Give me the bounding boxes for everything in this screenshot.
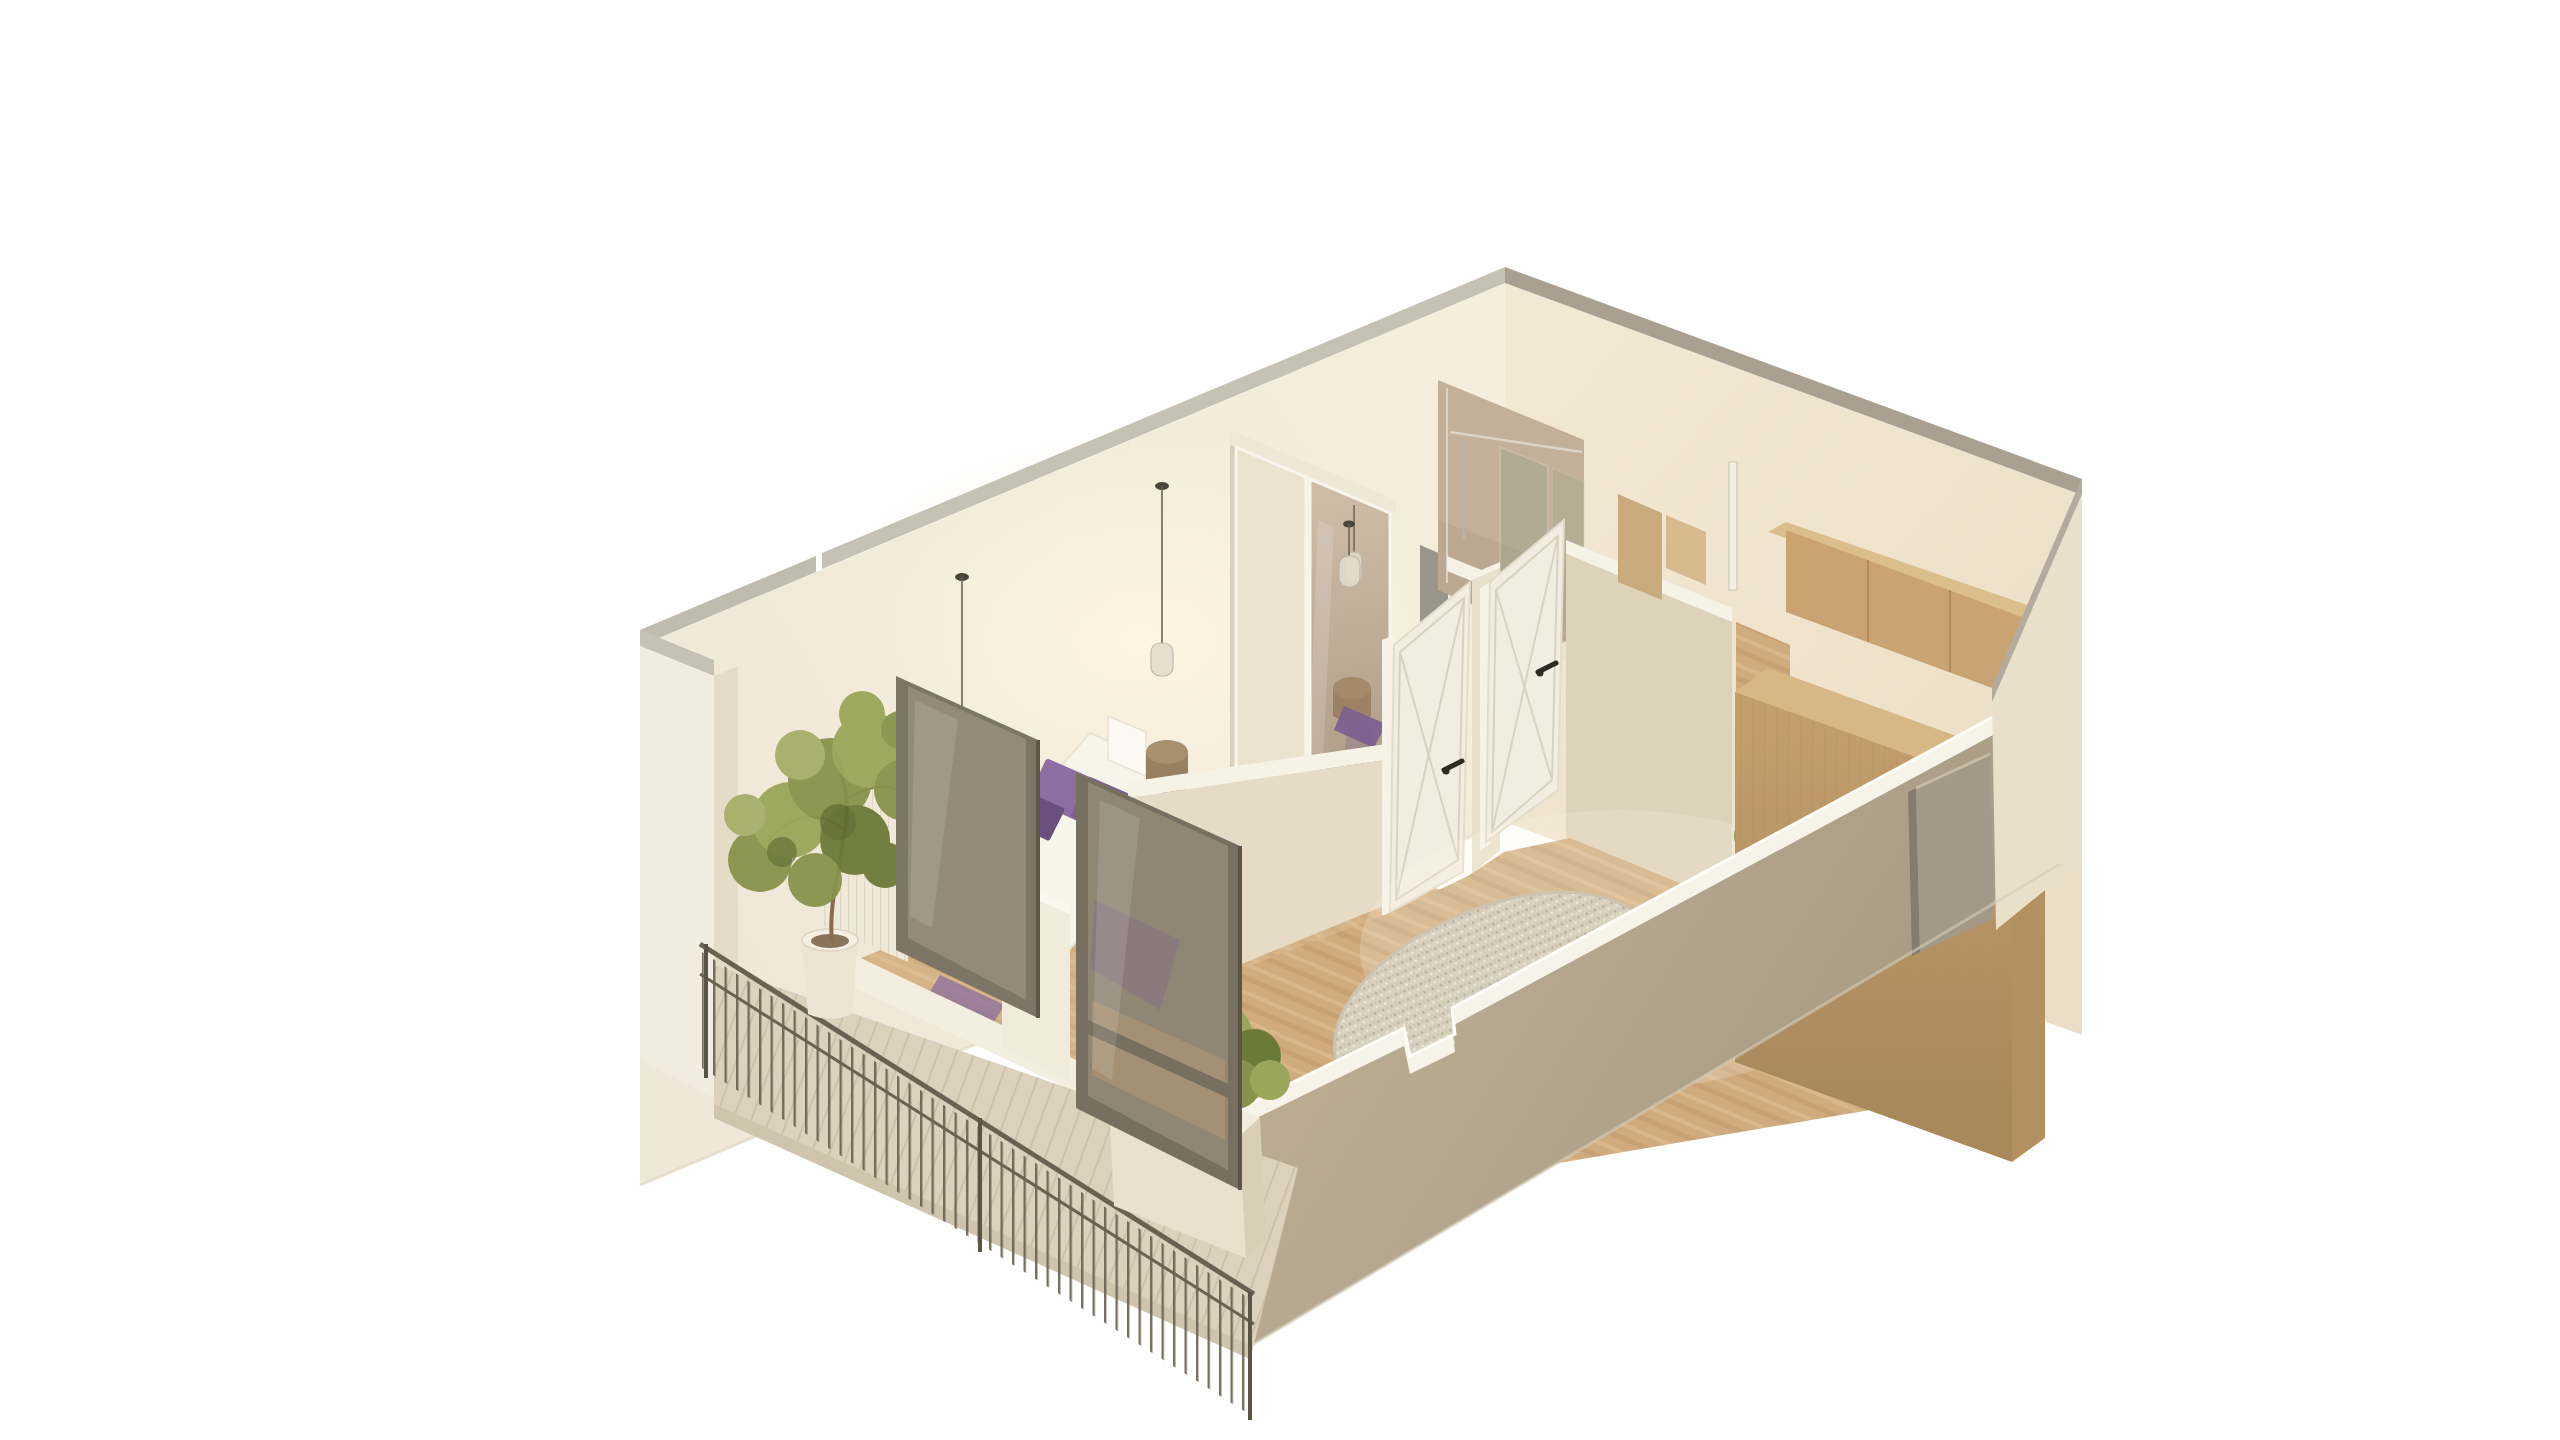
door-handle-rose: [1443, 768, 1450, 775]
pouf-top: [1333, 677, 1371, 699]
door-handle-rose: [1537, 670, 1544, 677]
hall-door-frame-post: [1729, 462, 1737, 590]
plant-pot: [802, 940, 858, 1019]
render-canvas: 3D isometric cutaway floor-plan render o…: [0, 0, 2560, 1440]
pendant-glass-shade: [1339, 556, 1360, 587]
pendant-glass-shade: [1151, 643, 1173, 676]
floorplan-3d-render: 3D isometric cutaway floor-plan render o…: [0, 0, 2560, 1440]
pouf-top: [1146, 740, 1188, 764]
